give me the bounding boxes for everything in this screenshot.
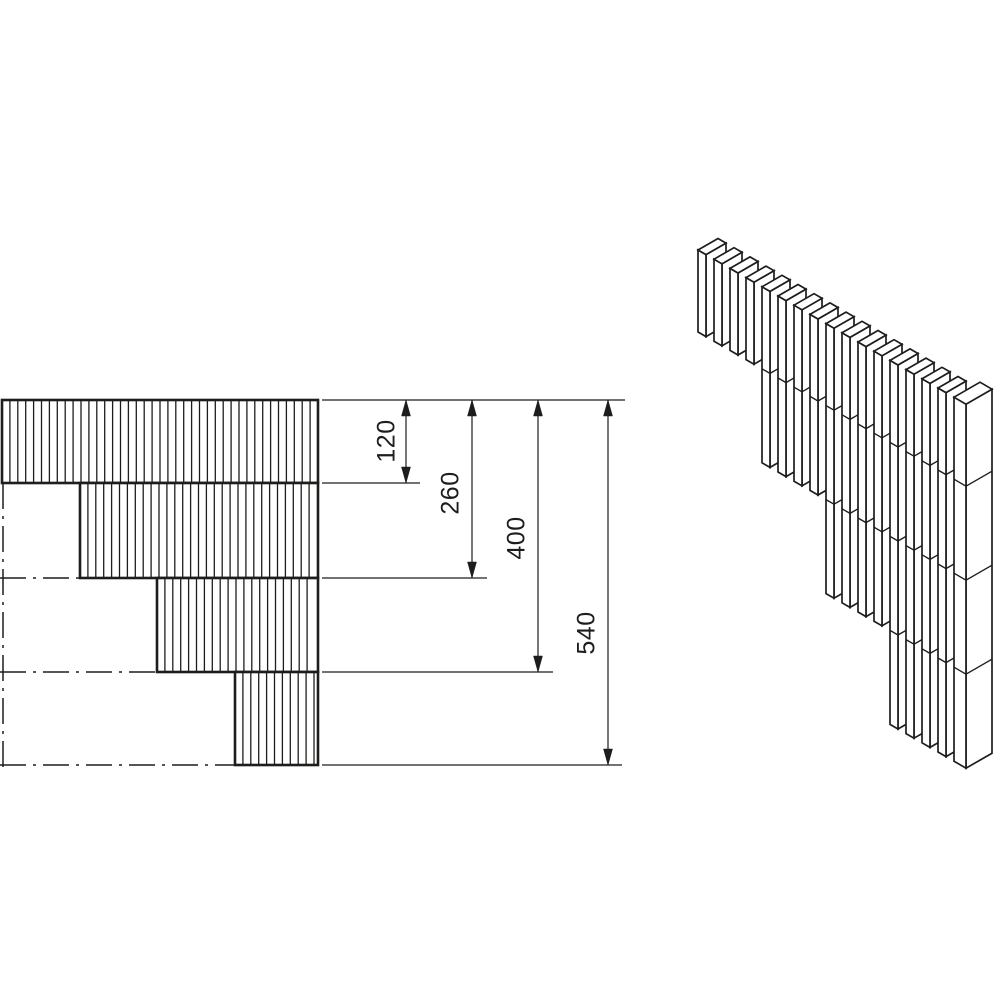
dimension-arrow bbox=[604, 400, 613, 416]
slat-front-face bbox=[906, 370, 914, 739]
end-block bbox=[954, 382, 992, 768]
hatched-band bbox=[80, 483, 318, 578]
slat-front-face bbox=[698, 250, 706, 337]
slat-front-face bbox=[778, 296, 786, 477]
dimension-arrow bbox=[534, 400, 543, 416]
dimension-arrow bbox=[402, 467, 411, 483]
slat-front-face bbox=[842, 333, 850, 608]
dimensioning: 120260400540 bbox=[322, 400, 625, 765]
slat-front-face bbox=[922, 379, 930, 748]
slat-front-face bbox=[762, 287, 770, 468]
dimension-label: 260 bbox=[437, 471, 465, 514]
slat-front-face bbox=[858, 342, 866, 617]
slat-front-face bbox=[938, 388, 946, 757]
slat-front-face bbox=[794, 305, 802, 486]
hatched-band bbox=[157, 578, 318, 672]
dimension-arrow bbox=[468, 400, 477, 416]
dimension-arrow bbox=[402, 400, 411, 416]
dimension-label: 400 bbox=[503, 516, 531, 559]
slat-front-face bbox=[714, 259, 722, 346]
dimension-arrow bbox=[468, 562, 477, 578]
dimension-label: 120 bbox=[373, 419, 401, 462]
technical-drawing: 120260400540 bbox=[0, 0, 1000, 1000]
slat-front-face bbox=[874, 351, 882, 626]
slat-front-face bbox=[746, 278, 754, 365]
hatched-band bbox=[2, 400, 318, 483]
dimension-label: 540 bbox=[573, 611, 601, 654]
slat-front-face bbox=[890, 360, 898, 729]
isometric-view bbox=[698, 239, 992, 769]
slat-front-face bbox=[810, 314, 818, 495]
dimension-arrow bbox=[604, 749, 613, 765]
slat-front-face bbox=[826, 324, 834, 599]
hatched-band bbox=[235, 672, 318, 765]
drawing-canvas: 120260400540 bbox=[0, 0, 1000, 1000]
end-block-front-face bbox=[954, 397, 966, 768]
dimension-arrow bbox=[534, 656, 543, 672]
slat-front-face bbox=[730, 268, 738, 355]
elevation-view bbox=[2, 400, 318, 765]
